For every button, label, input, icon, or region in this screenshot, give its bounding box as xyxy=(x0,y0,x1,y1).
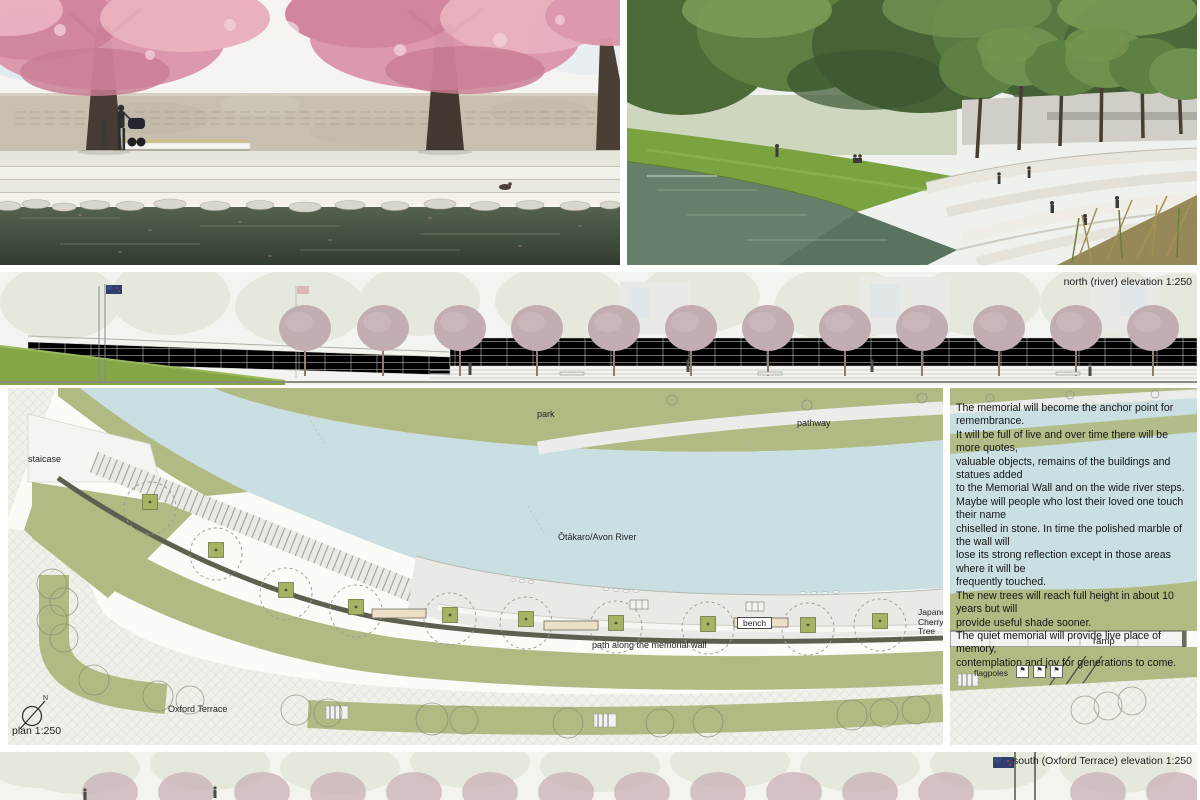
flag-marker-icon: ⚑ xyxy=(1033,665,1046,678)
south-elevation-drawing: south (Oxford Terrace) elevation 1:250 xyxy=(0,752,1197,800)
site-plan-drawing: N xyxy=(8,388,943,745)
svg-text:N: N xyxy=(43,695,48,702)
flagpoles-label: flagpoles xyxy=(974,668,1008,678)
flag-marker-icon: ⚑ xyxy=(1016,665,1029,678)
park-label: park xyxy=(537,409,555,419)
plan-scale-label: plan 1:250 xyxy=(12,726,61,736)
staircase-label: staicase xyxy=(28,454,61,464)
river-render-drawing xyxy=(627,0,1197,265)
path-wall-label: path along the memorial wall xyxy=(592,640,707,650)
oxford-terrace-label: Oxford Terrace xyxy=(168,704,227,714)
presentation-board: north (river) elevation 1:250 xyxy=(0,0,1200,800)
cherry-tree-label: Japanese Cherry Tree xyxy=(918,608,943,637)
site-plan-right-section: The memorial will become the anchor poin… xyxy=(950,388,1197,745)
bench-label: bench xyxy=(737,617,772,629)
south-elevation-label: south (Oxford Terrace) elevation 1:250 xyxy=(1013,755,1192,767)
project-description: The memorial will become the anchor poin… xyxy=(956,402,1194,670)
north-elevation-drawing: north (river) elevation 1:250 xyxy=(0,272,1197,385)
ramp-label: ramp xyxy=(1093,637,1115,647)
render-cherry-promenade xyxy=(0,0,620,265)
cherry-render-drawing xyxy=(0,0,620,265)
render-river-terraces xyxy=(627,0,1197,265)
north-elevation-label: north (river) elevation 1:250 xyxy=(1064,276,1192,288)
pathway-label: pathway xyxy=(797,418,831,428)
flag-marker-icon: ⚑ xyxy=(1050,665,1063,678)
river-label: Ōtākaro/Avon River xyxy=(558,532,636,542)
site-plan: N staicase park pathway Ōtākaro/Avon Riv… xyxy=(8,388,943,745)
north-elevation-svg xyxy=(0,272,1197,385)
